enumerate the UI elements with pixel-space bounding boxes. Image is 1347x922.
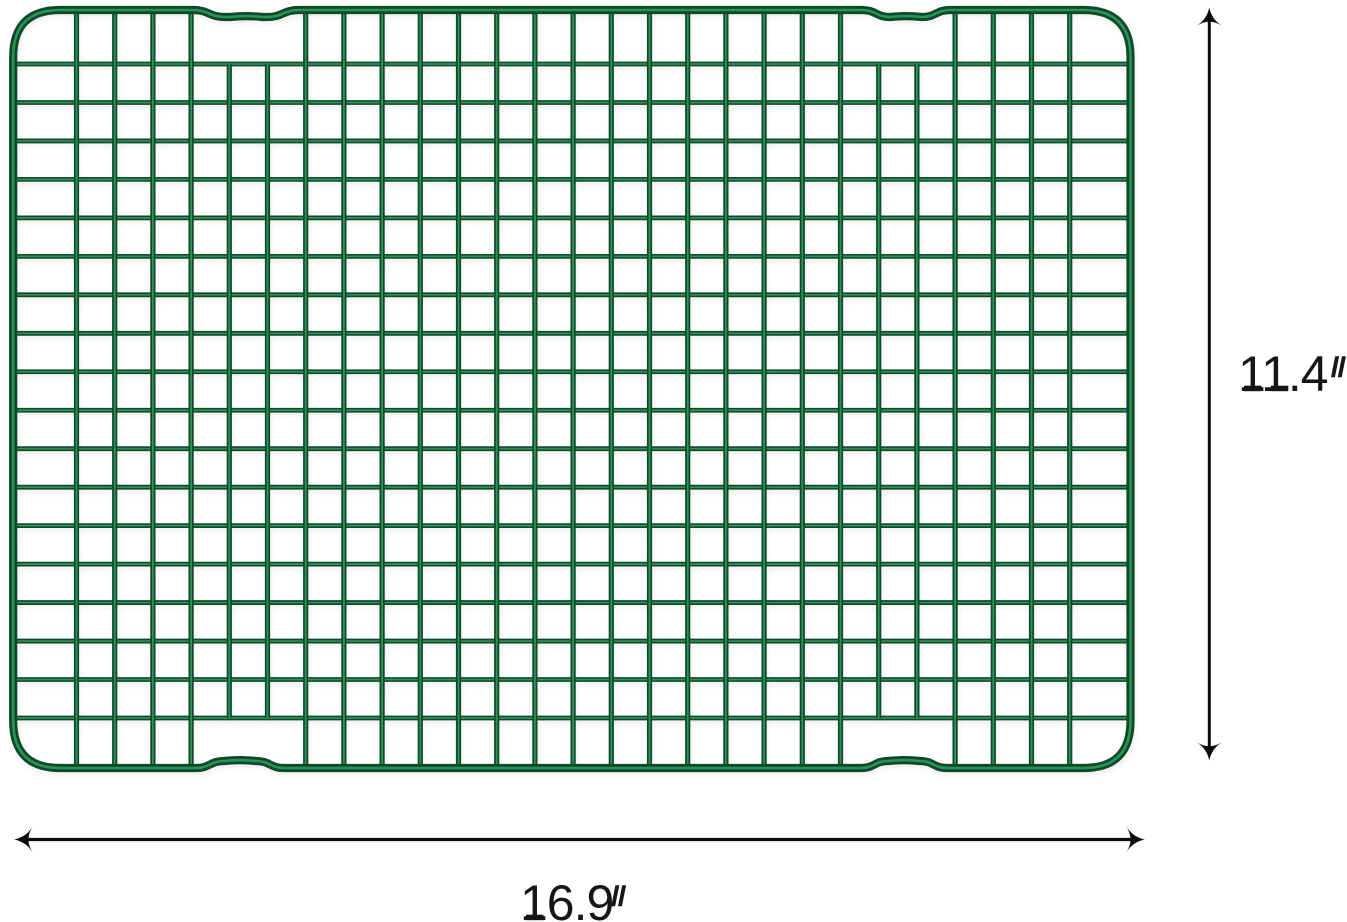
svg-text:11.4: 11.4 <box>1238 346 1328 402</box>
